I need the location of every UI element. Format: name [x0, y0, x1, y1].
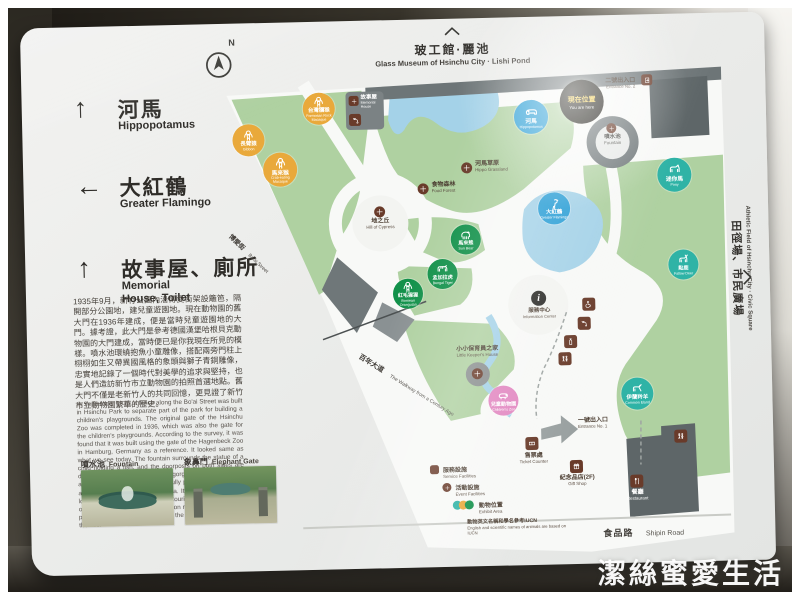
toilet-icon: [560, 354, 569, 363]
service-points-layer: [20, 12, 776, 577]
photo-of-zoo-map-sign: N ↑ 河馬 Hippopotamus ← 大紅鶴 Greater Flamin…: [0, 0, 800, 600]
toilet-restaurant-marker: [674, 429, 687, 442]
drinking-fountain-marker: [564, 335, 577, 348]
zoo-map-board: N ↑ 河馬 Hippopotamus ← 大紅鶴 Greater Flamin…: [20, 12, 776, 577]
blog-watermark: 潔絲蜜愛生活: [598, 552, 784, 592]
faucet-icon: [580, 319, 589, 328]
nursing-room-marker: [578, 317, 591, 330]
accessible-toilet-marker: [582, 298, 595, 311]
toilet-icon: [676, 432, 685, 441]
bottle-icon: [566, 337, 575, 346]
toilet-center-marker: [558, 352, 571, 365]
wheelchair-icon: [584, 300, 593, 309]
